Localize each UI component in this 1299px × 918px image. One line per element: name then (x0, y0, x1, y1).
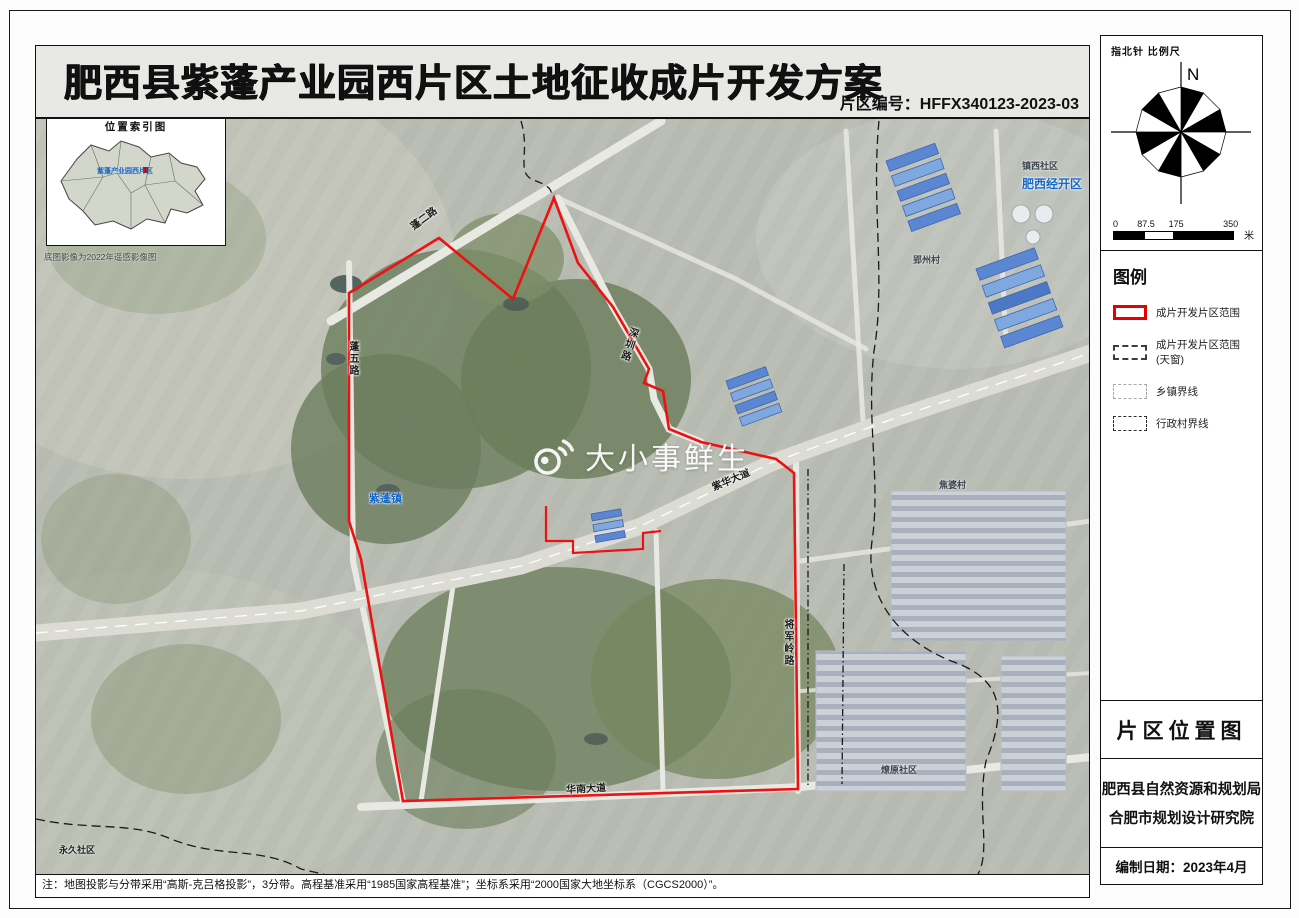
satellite-map: 位置索引图 紫蓬产业园西片区 底图影像为2022年遥感影像图 蓬二路 蓬五路 深… (35, 118, 1090, 875)
inset-site-label: 紫蓬产业园西片区 (97, 166, 153, 175)
scale-ticks: 0 87.5 175 350 (1113, 219, 1234, 231)
organization-section: 肥西县自然资源和规划局 合肥市规划设计研究院 (1101, 759, 1262, 848)
location-index-inset: 位置索引图 紫蓬产业园西片区 (46, 118, 226, 246)
legend-swatch-township-line (1113, 384, 1147, 399)
legend-item-township-line: 乡镇界线 (1113, 384, 1250, 399)
sidebar: 指北针 比例尺 (1100, 35, 1263, 885)
org-line-2: 合肥市规划设计研究院 (1109, 807, 1254, 828)
legend-label: 成片开发片区范围(天窗) (1156, 337, 1250, 367)
road-label-huanan: 华南大道 (566, 779, 607, 796)
scale-tick-2: 175 (1169, 219, 1184, 229)
scale-unit: 米 (1244, 227, 1254, 242)
location-map-title: 片区位置图 (1117, 715, 1247, 745)
legend-title: 图例 (1113, 263, 1250, 288)
inset-title: 位置索引图 (47, 119, 225, 134)
legend-label: 成片开发片区范围 (1156, 305, 1240, 320)
place-label-liaoyuan: 燎原社区 (881, 763, 917, 776)
inset-caption: 底图影像为2022年遥感影像图 (44, 251, 156, 263)
north-label: N (1187, 65, 1199, 84)
weibo-icon (531, 434, 575, 478)
legend-item-village-line: 行政村界线 (1113, 416, 1250, 431)
date-section: 编制日期：2023年4月 (1101, 848, 1262, 884)
org-line-1: 肥西县自然资源和规划局 (1102, 778, 1262, 799)
legend-item-skylight: 成片开发片区范围(天窗) (1113, 337, 1250, 367)
plan-sheet: 肥西县紫蓬产业园西片区土地征收成片开发方案 片区编号：HFFX340123-20… (0, 0, 1299, 918)
county-outline-map: 紫蓬产业园西片区 (47, 133, 223, 241)
header: 肥西县紫蓬产业园西片区土地征收成片开发方案 片区编号：HFFX340123-20… (35, 45, 1090, 118)
legend-swatch-village-line (1113, 416, 1147, 431)
legend-section: 图例 成片开发片区范围 成片开发片区范围(天窗) 乡镇界线 行政村界线 (1101, 251, 1262, 701)
legend-label: 行政村界线 (1156, 416, 1209, 431)
footer-note: 注：地图投影与分带采用“高斯-克吕格投影”，3分带。高程基准采用“1985国家高… (35, 874, 1090, 898)
place-label-yongjiu: 永久社区 (59, 843, 95, 856)
scale-tick-0: 0 (1113, 219, 1118, 229)
watermark: 大小事鲜生 (531, 434, 750, 478)
place-label-feixi-edz: 肥西经开区 (1022, 175, 1082, 192)
place-label-jiaopo: 焦婆村 (939, 478, 966, 491)
legend-label: 乡镇界线 (1156, 384, 1198, 399)
road-label-peng5: 蓬五路 (345, 341, 360, 377)
scale-tick-1: 87.5 (1137, 219, 1155, 229)
location-map-title-section: 片区位置图 (1101, 701, 1262, 759)
legend-item-boundary: 成片开发片区范围 (1113, 305, 1250, 320)
place-label-yingzhou: 郢州村 (913, 253, 940, 266)
compass-scale-section: 指北针 比例尺 (1101, 36, 1262, 251)
road-label-jiangjunling: 将军岭路 (780, 619, 795, 667)
place-label-zipeng-town: 紫蓬镇 (369, 490, 402, 506)
legend-swatch-red-boundary (1113, 305, 1147, 320)
plan-code: 片区编号：HFFX340123-2023-03 (840, 90, 1079, 114)
scale-tick-3: 350 (1223, 219, 1238, 229)
legend-swatch-dashed-boundary (1113, 345, 1147, 360)
scale-bar-segments (1113, 231, 1234, 240)
compile-date: 编制日期：2023年4月 (1115, 856, 1247, 876)
scale-bar: 0 87.5 175 350 米 (1113, 219, 1234, 240)
compass-rose-icon: N (1101, 56, 1261, 206)
page-title: 肥西县紫蓬产业园西片区土地征收成片开发方案 (64, 52, 883, 107)
place-label-zhenxi: 镇西社区 (1022, 159, 1058, 172)
watermark-text: 大小事鲜生 (585, 434, 750, 478)
